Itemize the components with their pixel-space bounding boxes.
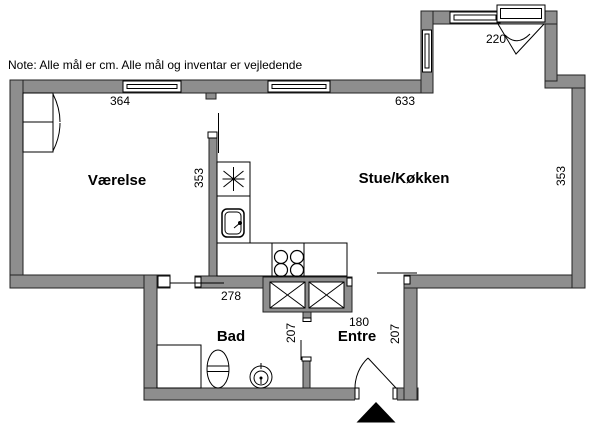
entrance-opening-cap-left (355, 388, 359, 399)
wardrobe-icon (23, 93, 60, 152)
shower-icon (157, 345, 201, 388)
cap-kitchen-wall-left (195, 277, 201, 287)
note-text: Note: Alle mål er cm. Alle mål og invent… (8, 58, 302, 72)
wall-corridor-left (144, 275, 157, 400)
room-label-entrance: Entre (338, 328, 376, 345)
room-label-bathroom: Bad (217, 328, 245, 345)
wall-left (10, 80, 23, 288)
dim-bedroom-width: 364 (110, 94, 130, 108)
dim-living-width: 633 (395, 94, 415, 108)
room-label-bedroom: Værelse (88, 172, 146, 189)
dim-living-depth: 353 (554, 166, 568, 186)
wall-kitchen-bottom (195, 276, 267, 288)
cap-bath-stub-top (302, 357, 311, 361)
kitchen-counter-horizontal (217, 243, 347, 276)
windows (123, 5, 545, 92)
window-icon-living (268, 81, 330, 92)
dim-entrance-depth: 207 (388, 324, 402, 344)
window-icon-bedroom (123, 81, 181, 92)
entrance-door-swing-icon (355, 358, 396, 388)
wall-bath-stub (303, 360, 310, 388)
appliance-box-icon-1 (270, 282, 305, 308)
wall-right (572, 75, 585, 288)
floor-plan-drawing: Note: Alle mål er cm. Alle mål og invent… (0, 0, 600, 434)
entrance-arrow-icon (357, 402, 396, 423)
window-icon-bay-top (450, 12, 500, 23)
wall-living-bottom (404, 275, 585, 288)
dim-balcony-door-width: 220 (486, 32, 506, 46)
entrance-opening-cap-right (393, 388, 397, 399)
cap-appliance-stub (303, 318, 311, 322)
bathroom-sink-icon (250, 363, 272, 388)
room-label-living-kitchen: Stue/Køkken (359, 170, 450, 187)
cap-partition-top (208, 132, 217, 138)
entrance-door-opening (355, 387, 397, 401)
toilet-icon (207, 350, 229, 388)
dim-bedroom-depth: 353 (192, 168, 206, 188)
dim-entrance-width: 180 (349, 315, 369, 329)
appliance-box-icon-2 (309, 282, 344, 308)
floor-plan-page: Note: Alle mål er cm. Alle mål og invent… (0, 0, 600, 434)
cap-appliance-right (347, 278, 352, 286)
balcony-door-icon (497, 5, 545, 22)
dim-bathroom-depth: 207 (284, 323, 298, 343)
wall-top-main (10, 80, 433, 93)
cap-bedroom-wall-end (158, 276, 170, 287)
radiator-valve-icon (206, 93, 216, 99)
wall-kitchen-partition (209, 133, 217, 277)
window-icon-bay-left (423, 30, 432, 72)
dim-bathroom-width: 278 (221, 289, 241, 303)
cap-living-wall-left (404, 276, 410, 284)
wall-entrance-right (404, 275, 417, 400)
